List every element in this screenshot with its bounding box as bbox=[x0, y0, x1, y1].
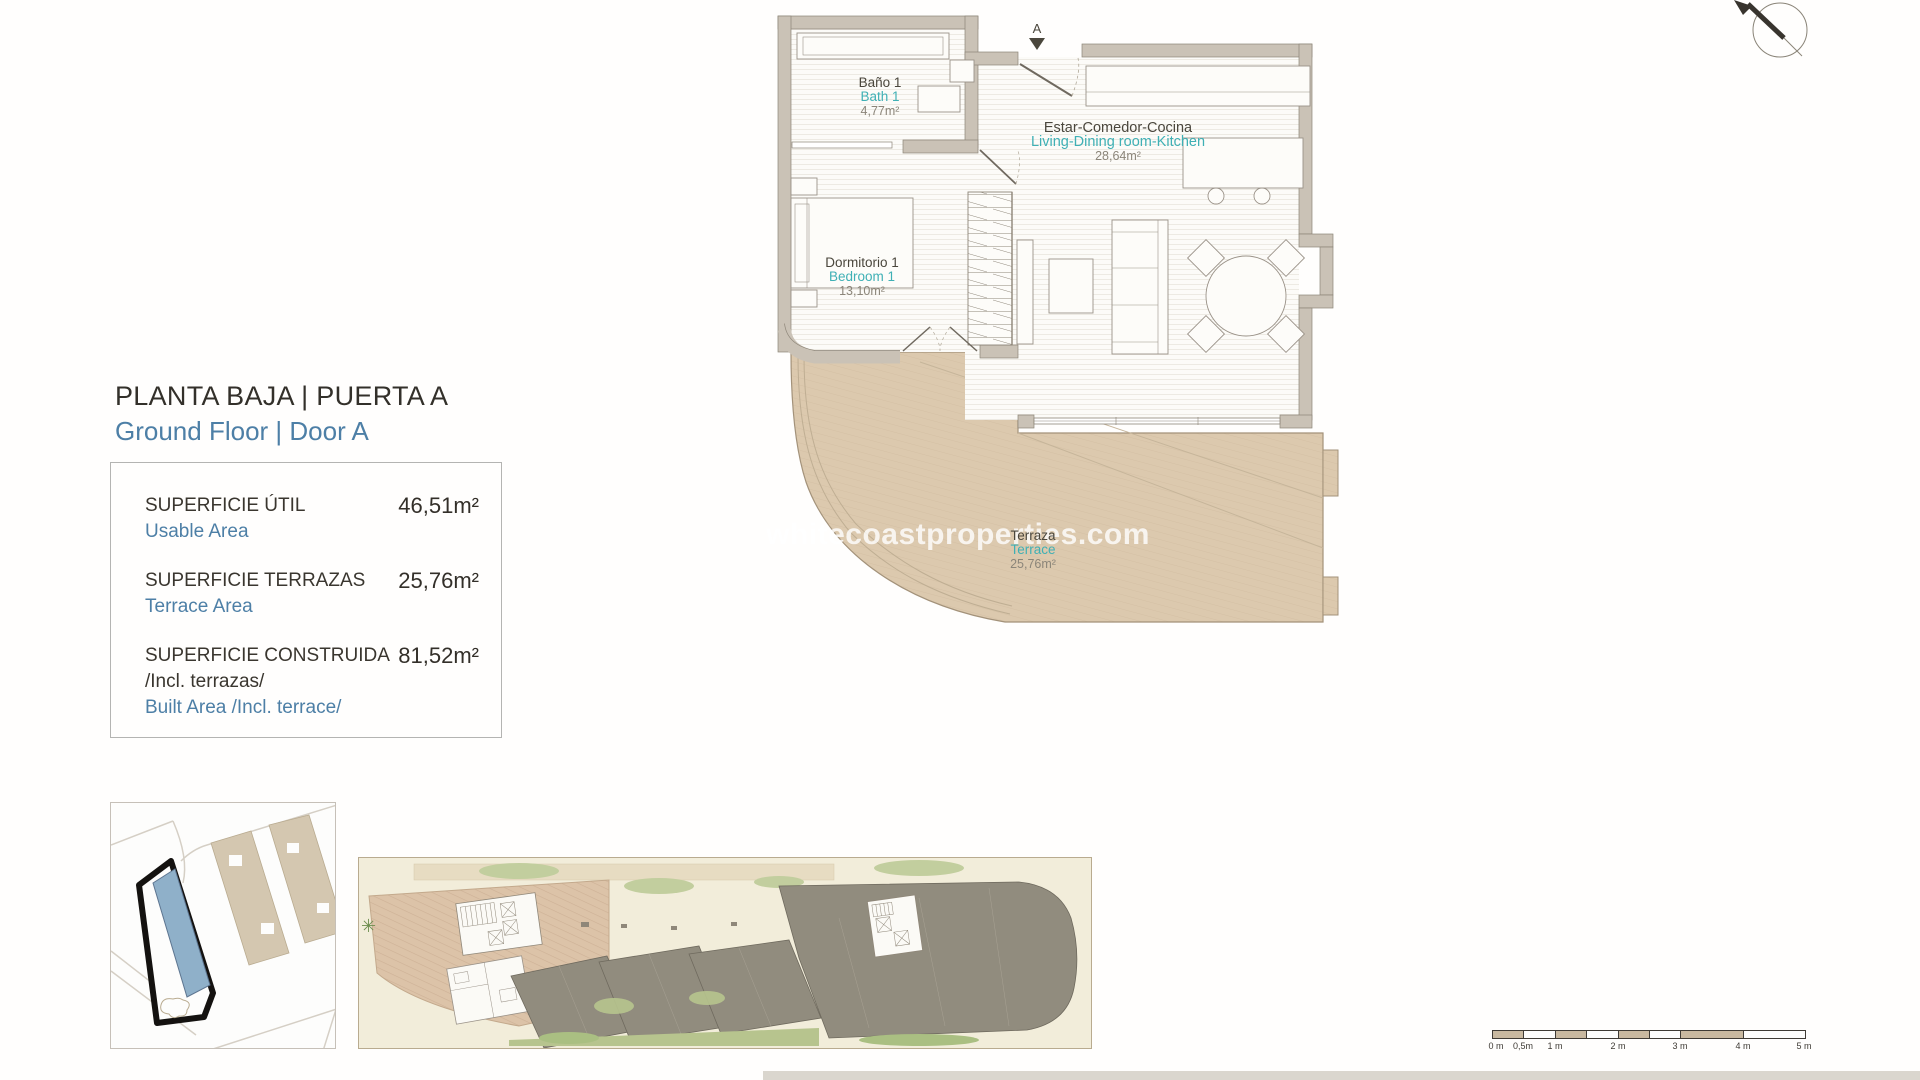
room-name-en: Bedroom 1 bbox=[825, 270, 899, 284]
scale-segment bbox=[1493, 1031, 1524, 1038]
siteplan-core-2 bbox=[867, 895, 922, 957]
area-label-en: Terrace Area bbox=[145, 594, 365, 620]
room-area: 25,76m² bbox=[1010, 557, 1056, 571]
entrance-arrow-icon bbox=[1029, 38, 1045, 50]
wardrobe-strip bbox=[968, 192, 1012, 345]
scale-segment bbox=[1650, 1031, 1681, 1038]
page-title: PLANTA BAJA | PUERTA A Ground Floor | Do… bbox=[115, 381, 448, 447]
area-value: 25,76m² bbox=[398, 568, 479, 620]
room-name-en: Living-Dining room-Kitchen bbox=[1031, 135, 1205, 149]
minimap-subject-building bbox=[139, 861, 213, 1023]
minimap-drawing bbox=[111, 803, 335, 1048]
area-row-terrace: SUPERFICIE TERRAZAS Terrace Area 25,76m² bbox=[145, 568, 479, 620]
scale-segment bbox=[1681, 1031, 1744, 1038]
area-value: 81,52m² bbox=[398, 643, 479, 721]
room-name-es: Baño 1 bbox=[859, 76, 902, 90]
area-row-built: SUPERFICIE CONSTRUIDA /Incl. terrazas/ B… bbox=[145, 643, 479, 721]
scale-label: 3 m bbox=[1672, 1041, 1687, 1051]
area-label-en: Built Area /Incl. terrace/ bbox=[145, 695, 390, 721]
page-title-en: Ground Floor | Door A bbox=[115, 416, 448, 447]
room-label-bath: Baño 1 Bath 1 4,77m² bbox=[859, 76, 902, 118]
location-minimap bbox=[110, 802, 336, 1049]
bath-sliding-door bbox=[792, 142, 892, 148]
page-title-es: PLANTA BAJA | PUERTA A bbox=[115, 381, 448, 412]
scale-bar-segments bbox=[1492, 1030, 1806, 1039]
site-plan-drawing: ✳ bbox=[359, 858, 1091, 1048]
window-band bbox=[1034, 417, 1280, 425]
area-label-es: SUPERFICIE TERRAZAS bbox=[145, 568, 365, 594]
entrance-marker: A bbox=[1029, 22, 1045, 50]
siteplan-core-1 bbox=[456, 893, 542, 956]
area-row-usable: SUPERFICIE ÚTIL Usable Area 46,51m² bbox=[145, 493, 479, 545]
scale-segment bbox=[1556, 1031, 1587, 1038]
area-value: 46,51m² bbox=[398, 493, 479, 545]
room-area: 13,10m² bbox=[825, 284, 899, 298]
palm-tree-icon: ✳ bbox=[361, 916, 376, 936]
bottom-edge-bar bbox=[763, 1071, 1920, 1080]
scale-label: 1 m bbox=[1547, 1041, 1562, 1051]
site-plan: ✳ bbox=[358, 857, 1092, 1049]
area-summary-box: SUPERFICIE ÚTIL Usable Area 46,51m² SUPE… bbox=[110, 462, 502, 738]
room-name-es: Terraza bbox=[1010, 529, 1056, 543]
scale-segment bbox=[1619, 1031, 1650, 1038]
watermark-text: whitecoastproperties.com bbox=[766, 518, 1150, 552]
scale-bar: 0 m 0,5m 1 m 2 m 3 m 4 m 5 m bbox=[1492, 1030, 1814, 1054]
scale-label: 2 m bbox=[1610, 1041, 1625, 1051]
room-name-en: Bath 1 bbox=[859, 90, 902, 104]
room-name-en: Terrace bbox=[1010, 543, 1056, 557]
area-label-es: SUPERFICIE CONSTRUIDA bbox=[145, 643, 390, 669]
area-label-en: Usable Area bbox=[145, 519, 305, 545]
room-label-living: Estar-Comedor-Cocina Living-Dining room-… bbox=[1031, 121, 1205, 163]
entrance-letter: A bbox=[1029, 22, 1045, 35]
room-area: 4,77m² bbox=[859, 104, 902, 118]
minimap-neighbor-buildings bbox=[211, 815, 335, 965]
scale-segment bbox=[1744, 1031, 1805, 1038]
area-label-es: SUPERFICIE ÚTIL bbox=[145, 493, 305, 519]
scale-segment bbox=[1587, 1031, 1619, 1038]
scale-label: 4 m bbox=[1735, 1041, 1750, 1051]
room-name-es: Dormitorio 1 bbox=[825, 256, 899, 270]
area-label-es-extra: /Incl. terrazas/ bbox=[145, 669, 390, 695]
scale-segment bbox=[1524, 1031, 1556, 1038]
scale-label: 0 m bbox=[1488, 1041, 1503, 1051]
room-area: 28,64m² bbox=[1031, 149, 1205, 163]
room-label-bedroom: Dormitorio 1 Bedroom 1 13,10m² bbox=[825, 256, 899, 298]
scale-label: 5 m bbox=[1796, 1041, 1811, 1051]
compass-north-icon bbox=[1722, 0, 1832, 70]
room-label-terrace: Terraza Terrace 25,76m² bbox=[1010, 529, 1056, 571]
scale-label: 0,5m bbox=[1513, 1041, 1533, 1051]
room-name-es: Estar-Comedor-Cocina bbox=[1031, 121, 1205, 135]
